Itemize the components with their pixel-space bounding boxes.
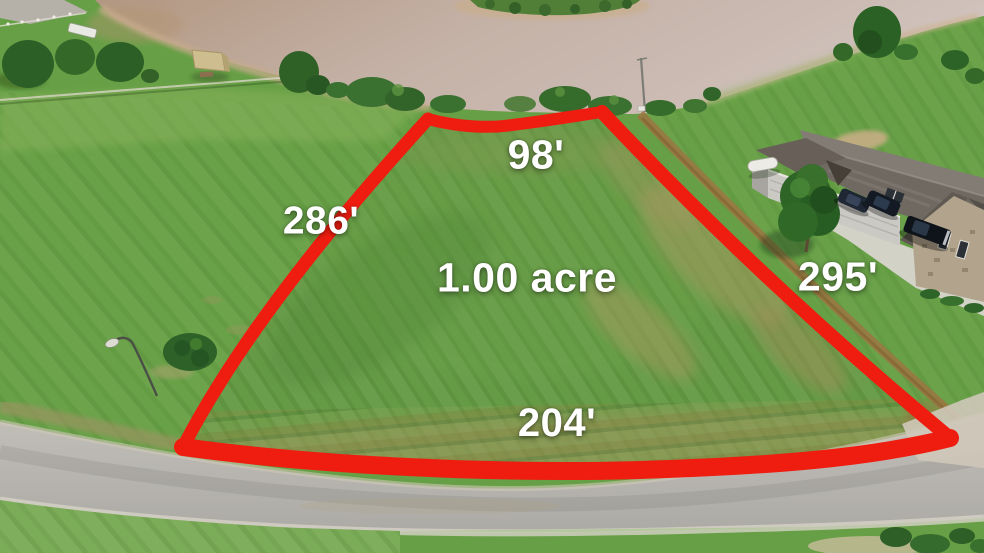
label-left-side: 286' [283,202,359,241]
aerial-photo-stage: 98' 286' 1.00 acre 295' 204' [0,0,984,553]
label-bottom-width: 204' [518,403,596,443]
label-top-width: 98' [508,135,565,176]
label-area: 1.00 acre [437,258,617,299]
pole-marker-sign [638,106,645,111]
picnic-table [200,72,213,78]
label-right-side: 295' [798,257,878,298]
boat-dock [191,50,230,82]
